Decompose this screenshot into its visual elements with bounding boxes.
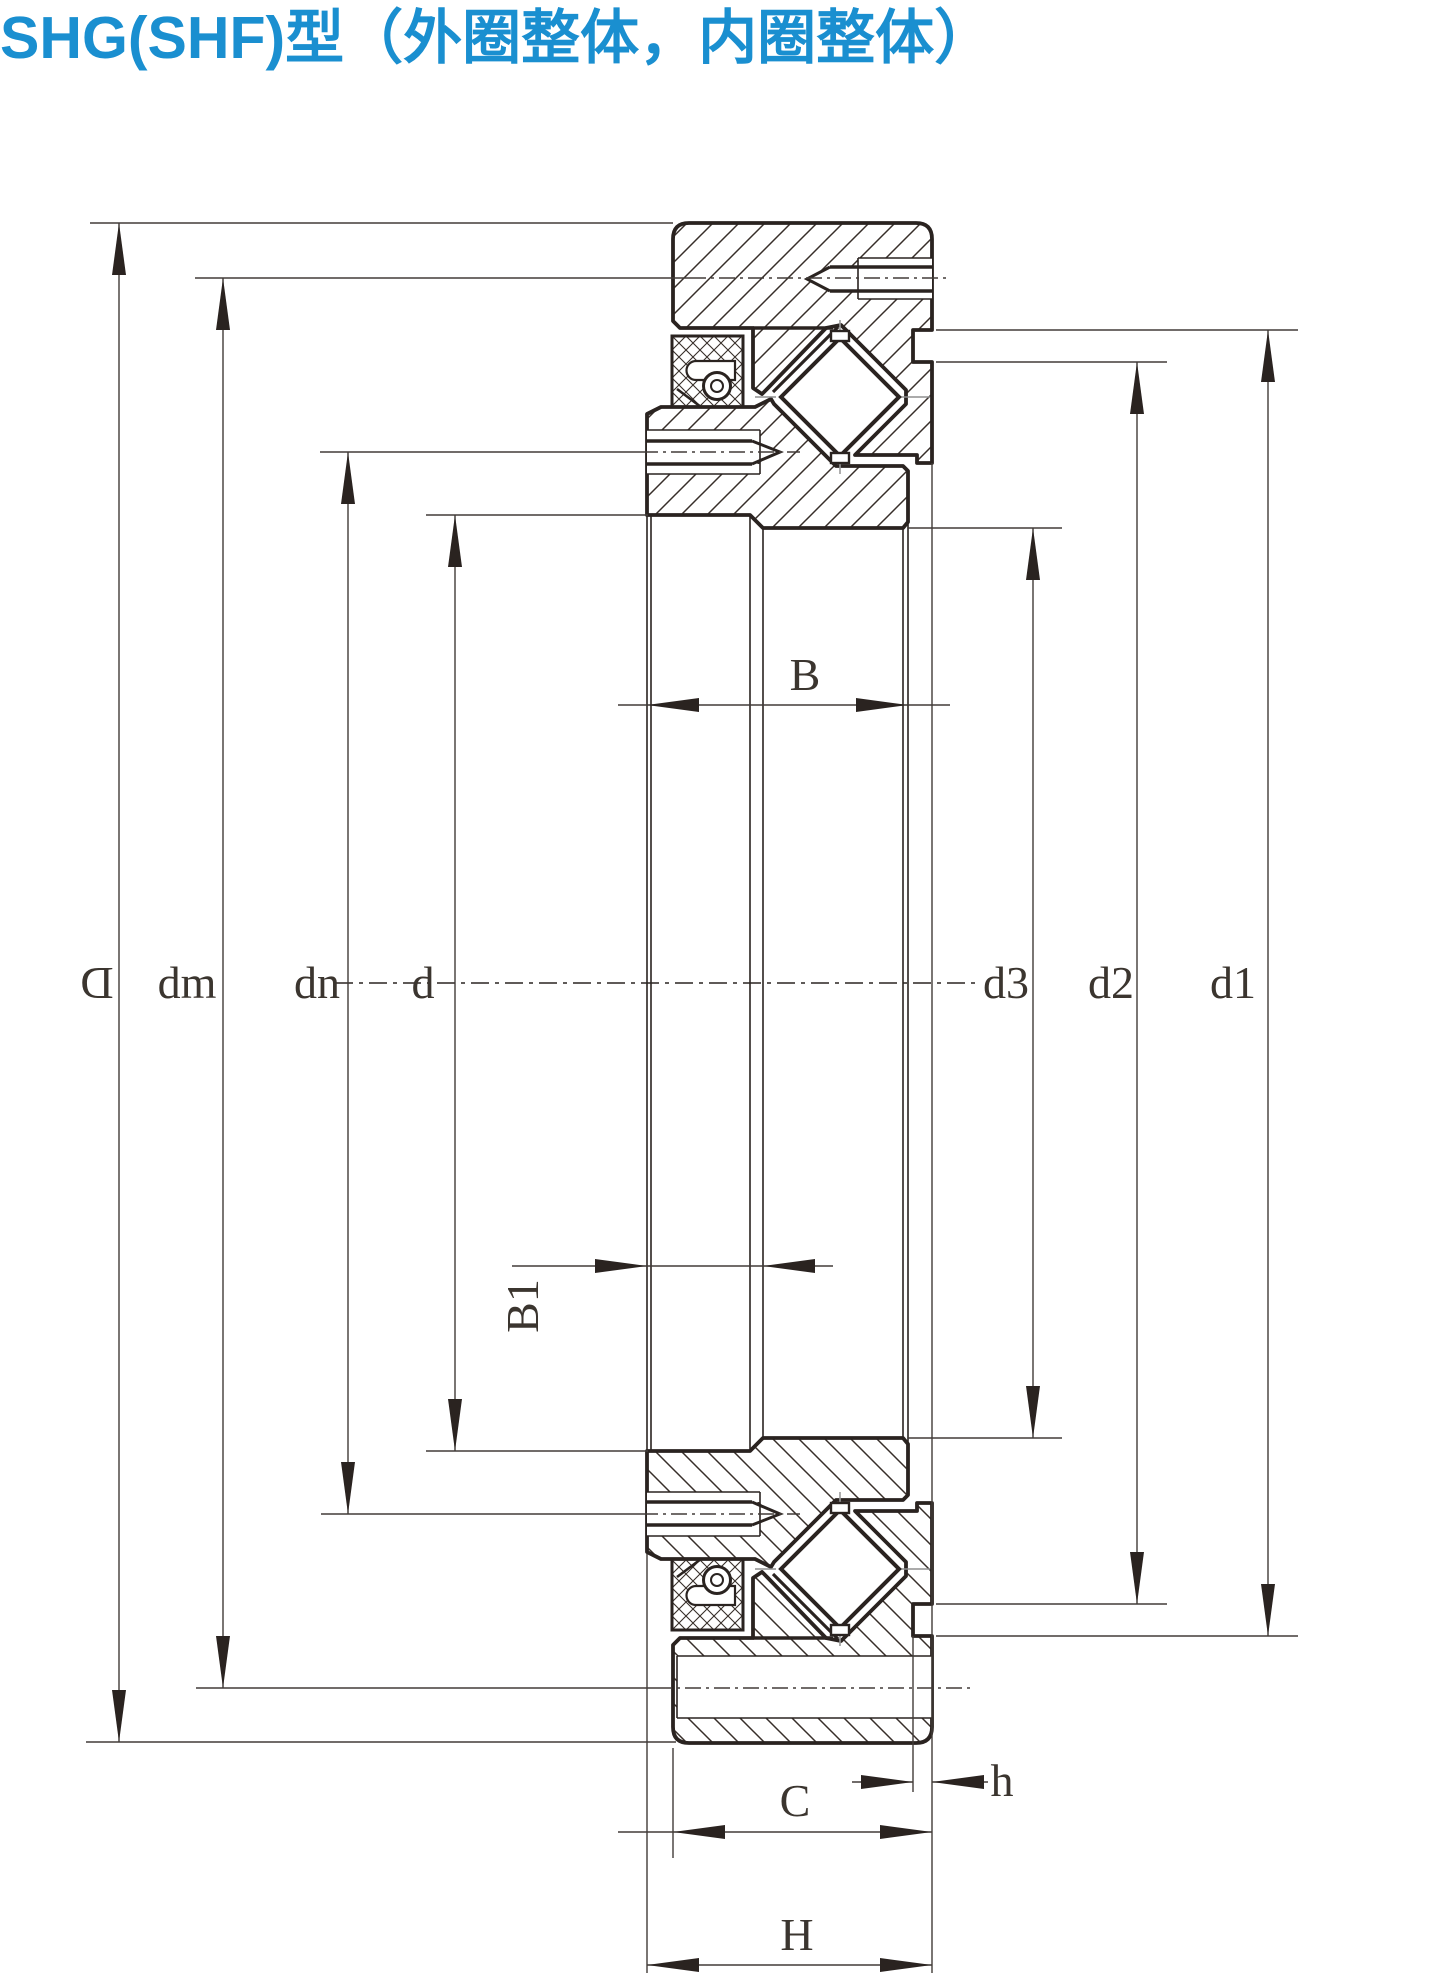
label-dm: dm bbox=[158, 957, 217, 1008]
label-B: B bbox=[790, 649, 821, 700]
label-dn: dn bbox=[294, 957, 340, 1008]
label-h: h bbox=[991, 1755, 1014, 1806]
bearing-section-drawing: D dm dn d d3 d2 d1 B B1 C h H bbox=[0, 0, 1443, 1982]
o-ring-inner bbox=[711, 380, 723, 392]
label-d2: d2 bbox=[1088, 957, 1134, 1008]
drawing-page: SHG(SHF)型（外圈整体，内圈整体） bbox=[0, 0, 1443, 1982]
outer-ring-through-hole bbox=[677, 1656, 932, 1718]
label-B1: B1 bbox=[497, 1279, 548, 1333]
dimension-labels: D dm dn d d3 d2 d1 B B1 C h H bbox=[80, 649, 1256, 1960]
label-d: d bbox=[412, 957, 435, 1008]
label-d1: d1 bbox=[1210, 957, 1256, 1008]
seal-assembly bbox=[672, 336, 743, 407]
label-C: C bbox=[780, 1775, 811, 1826]
label-d3: d3 bbox=[983, 957, 1029, 1008]
label-D: D bbox=[80, 957, 113, 1008]
roller-cage-tab-bottom bbox=[831, 453, 849, 463]
roller-cage-tab-top bbox=[831, 331, 849, 341]
label-H: H bbox=[780, 1909, 813, 1960]
